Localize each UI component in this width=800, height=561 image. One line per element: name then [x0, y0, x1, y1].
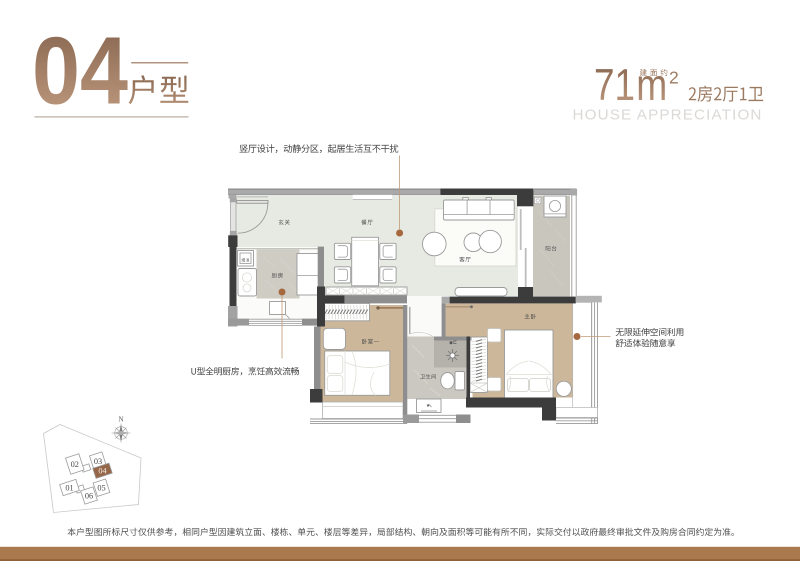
- svg-text:06: 06: [85, 491, 93, 500]
- svg-text:03: 03: [94, 457, 102, 466]
- svg-text:m: m: [636, 61, 667, 110]
- svg-text:05: 05: [97, 484, 105, 493]
- svg-text:04: 04: [98, 467, 107, 476]
- svg-text:71: 71: [594, 61, 635, 110]
- svg-text:2: 2: [669, 68, 679, 88]
- svg-text:01: 01: [65, 483, 73, 492]
- svg-text:02: 02: [71, 460, 79, 469]
- svg-text:HOUSE APPRECIATION: HOUSE APPRECIATION: [573, 106, 763, 123]
- svg-text:04: 04: [32, 17, 128, 124]
- svg-text:N: N: [118, 416, 123, 424]
